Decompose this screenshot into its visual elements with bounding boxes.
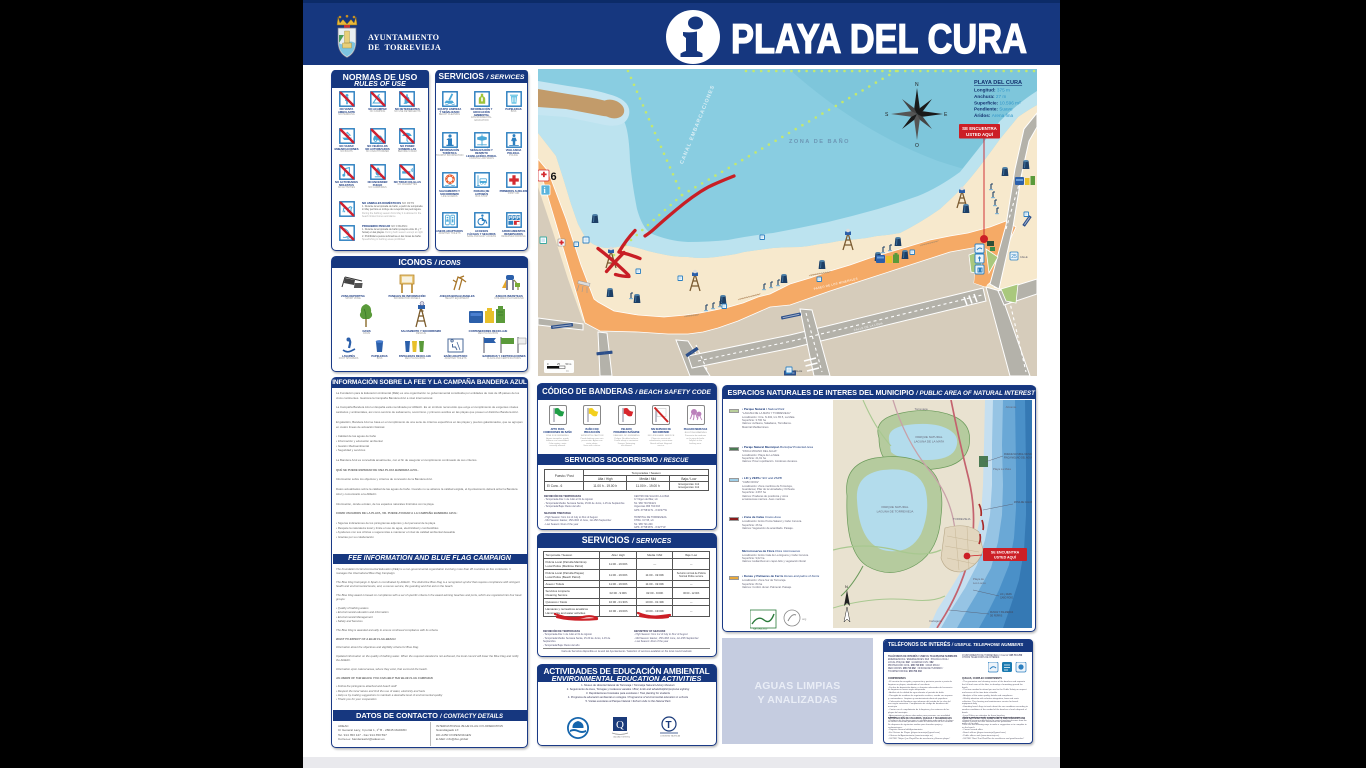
- svg-text:Superficie: 10.596 m²: Superficie: 10.596 m²: [974, 100, 1021, 105]
- svg-text:Longitud: 375 m: Longitud: 375 m: [974, 88, 1010, 93]
- svg-text:DUNAS Y PALMERAS: DUNAS Y PALMERAS: [990, 611, 1014, 614]
- svg-text:NATURA 2000: NATURA 2000: [753, 628, 768, 631]
- svg-text:Cartagena: Cartagena: [929, 619, 943, 623]
- svg-text:LAGUNA DE LA MATA: LAGUNA DE LA MATA: [914, 440, 944, 444]
- svg-text:org: org: [802, 617, 807, 621]
- svg-text:N: N: [845, 584, 848, 589]
- svg-text:SE ENCUENTRA: SE ENCUENTRA: [991, 551, 1020, 555]
- svg-text:PARAJE NATURAL MUNICIPAL: PARAJE NATURAL MUNICIPAL: [1004, 453, 1032, 456]
- svg-text:Playa La Mata: Playa La Mata: [993, 467, 1011, 471]
- svg-text:PARQUE NATURAL: PARQUE NATURAL: [915, 435, 942, 439]
- svg-text:USTED AQUÍ: USTED AQUÍ: [966, 132, 994, 137]
- svg-text:USTED AQUÍ: USTED AQUÍ: [994, 555, 1017, 560]
- svg-text:Anchura: 27 m: Anchura: 27 m: [974, 94, 1006, 99]
- svg-text:LAGUNA DE TORREVIEJA: LAGUNA DE TORREVIEJA: [877, 510, 914, 514]
- svg-text:Pendiente: Suave: Pendiente: Suave: [974, 107, 1013, 112]
- svg-text:TORREVIEJA: TORREVIEJA: [953, 517, 971, 521]
- svg-text:LIC y ZEPA: LIC y ZEPA: [1000, 593, 1012, 596]
- svg-text:ZONA DE CALAS: ZONA DE CALAS: [1014, 501, 1032, 504]
- svg-text:Los Locos: Los Locos: [973, 581, 986, 585]
- svg-text:CALIDAD TURISTICA: CALIDAD TURISTICA: [613, 736, 630, 739]
- svg-text:FINCA MOLINO DEL AGUA: FINCA MOLINO DEL AGUA: [1004, 457, 1032, 460]
- svg-text:Torrevieja: Torrevieja: [914, 407, 927, 411]
- svg-text:Alicante: Alicante: [1006, 405, 1017, 409]
- svg-text:T: T: [666, 720, 672, 731]
- svg-text:Q: Q: [616, 719, 624, 731]
- svg-text:SE ENCUENTRA: SE ENCUENTRA: [962, 126, 997, 131]
- svg-text:PARQUE NATURAL: PARQUE NATURAL: [881, 505, 908, 509]
- svg-text:CABO ROIG: CABO ROIG: [1000, 597, 1013, 600]
- svg-text:PLAYA DEL CURA: PLAYA DEL CURA: [974, 80, 1022, 86]
- svg-text:Áridos: Arena fina: Áridos: Arena fina: [974, 112, 1013, 118]
- svg-text:COMUNITAT VALENCIANA: COMUNITAT VALENCIANA: [660, 735, 680, 738]
- svg-text:DE FERRIS: DE FERRIS: [990, 616, 1003, 618]
